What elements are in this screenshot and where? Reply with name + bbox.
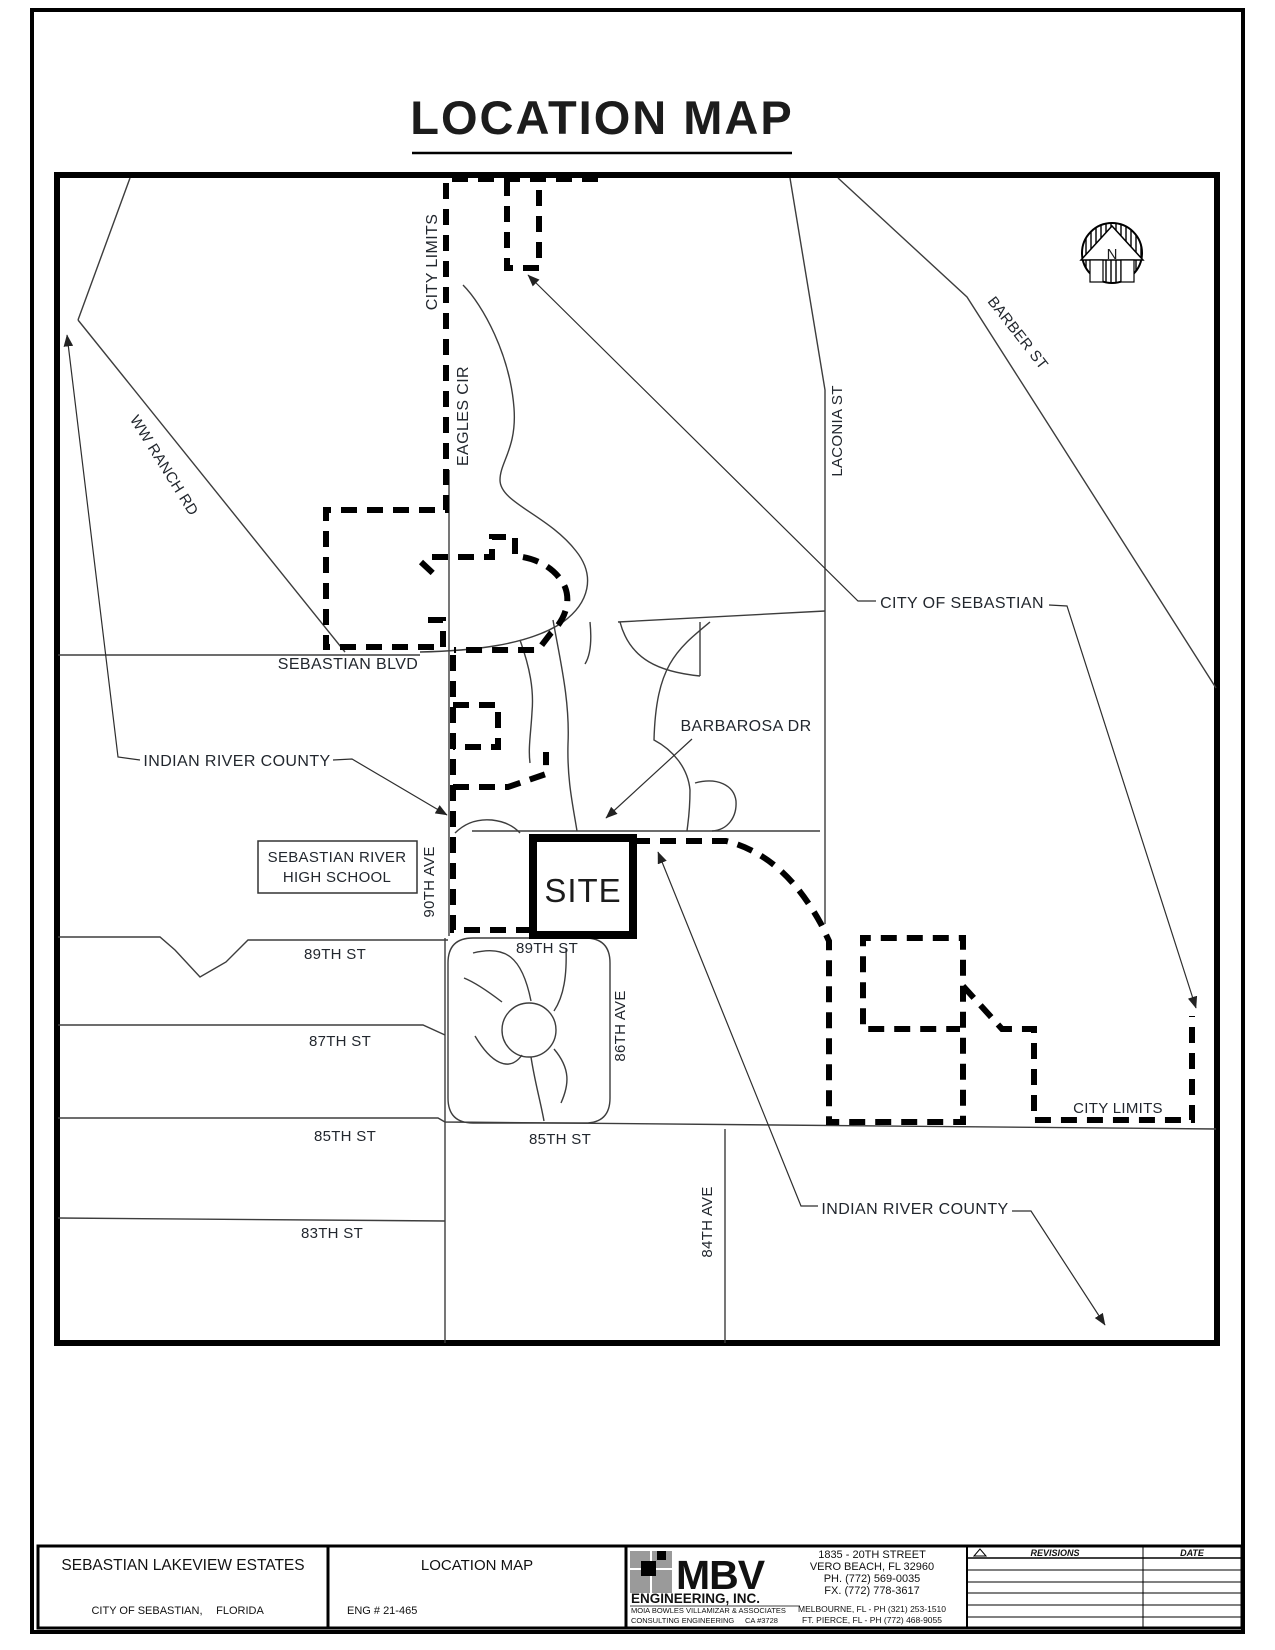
label-indian-river-county-left: INDIAN RIVER COUNTY: [143, 753, 330, 770]
road-subdivision-inner-6: [464, 978, 502, 1002]
city-limits-notch-top: [507, 180, 539, 268]
leader-irc-left-up: [67, 335, 140, 760]
label-ww-ranch-rd: WW RANCH RD: [126, 412, 201, 518]
high-school-label-line1: SEBASTIAN RIVER: [268, 849, 407, 866]
road-barbarosa-dr: [553, 620, 577, 831]
leader-irc-bottom-right: [1012, 1211, 1105, 1325]
road-subdivision-inner-4: [554, 1049, 567, 1103]
road-parcel-6: [585, 622, 591, 664]
road-89th-st-west: [58, 937, 448, 977]
location-map-sheet: LOCATION MAP: [0, 0, 1275, 1650]
firm-office1: MELBOURNE, FL - PH (321) 253-1510: [798, 1604, 946, 1614]
leader-barbarosa: [606, 739, 692, 818]
label-eagles-cir: EAGLES CIR: [455, 366, 472, 466]
leader-irc-bottom-left: [658, 852, 818, 1206]
firm-name: ENGINEERING, INC.: [631, 1591, 760, 1606]
label-87th-st: 87TH ST: [309, 1033, 371, 1050]
city-limits-group: [326, 179, 1192, 1122]
sheet-title: LOCATION MAP: [421, 1557, 533, 1574]
site-label: SITE: [544, 872, 621, 909]
city-limits-step-a: [421, 562, 437, 577]
firm-office2: FT. PIERCE, FL - PH (772) 468-9055: [802, 1615, 942, 1625]
logo-black-tab: [657, 1551, 666, 1560]
firm-subtitle2: CONSULTING ENGINEERING: [631, 1616, 734, 1625]
label-86th-ave: 86TH AVE: [612, 990, 629, 1061]
map-labels-group: CITY LIMITS EAGLES CIR WW RANCH RD BARBE…: [126, 214, 1163, 1258]
label-sebastian-blvd: SEBASTIAN BLVD: [278, 656, 418, 673]
road-subdivision-inner-3: [475, 1036, 522, 1064]
city-limits-west-drop: [453, 655, 532, 930]
firm-fax: FX. (772) 778-3617: [824, 1585, 919, 1597]
city-limits-wave: [453, 752, 546, 787]
label-90th-ave: 90TH AVE: [421, 846, 438, 917]
page-border: [32, 10, 1243, 1632]
project-state: FLORIDA: [216, 1605, 264, 1617]
label-city-limits-right: CITY LIMITS: [1073, 1100, 1163, 1117]
north-arrow-leg-left: [1090, 260, 1103, 282]
project-name: SEBASTIAN LAKEVIEW ESTATES: [61, 1557, 304, 1574]
label-city-limits-top: CITY LIMITS: [424, 214, 441, 311]
north-arrow-n: N: [1107, 246, 1118, 263]
label-89th-st-left: 89TH ST: [304, 946, 366, 963]
road-roundabout: [502, 1003, 556, 1057]
label-indian-river-county-bottom: INDIAN RIVER COUNTY: [821, 1201, 1008, 1218]
road-83th-st: [58, 1218, 445, 1221]
city-limits-blob: [432, 537, 567, 650]
address-line1: 1835 - 20TH STREET: [818, 1549, 926, 1561]
revisions-header: REVISIONS: [1030, 1548, 1079, 1558]
project-city: CITY OF SEBASTIAN,: [91, 1605, 202, 1617]
label-barber-st: BARBER ST: [984, 293, 1051, 373]
label-84th-ave: 84TH AVE: [699, 1186, 716, 1257]
road-87th-st: [58, 1025, 445, 1035]
label-city-of-sebastian: CITY OF SEBASTIAN: [880, 595, 1044, 612]
label-barbarosa-dr: BARBAROSA DR: [680, 718, 811, 735]
label-laconia-st: LACONIA ST: [829, 385, 846, 476]
leader-irc-left-right: [333, 759, 447, 815]
firm-license: CA #3728: [745, 1616, 778, 1625]
label-89th-st-right: 89TH ST: [516, 940, 578, 957]
logo-black-square: [641, 1561, 656, 1576]
north-arrow: N: [1081, 223, 1143, 283]
page-title: LOCATION MAP: [410, 91, 793, 144]
road-northwest: [78, 178, 130, 320]
road-subdivision-inner-5: [531, 1057, 544, 1121]
city-limits-stair: [453, 705, 498, 747]
firm-subtitle: MOIA BOWLES VILLAMIZAR & ASSOCIATES: [631, 1606, 786, 1615]
road-parcel-1: [520, 640, 533, 763]
firm-phone: PH. (772) 569-0035: [824, 1573, 921, 1585]
road-parcel-3: [695, 781, 736, 831]
title-block: SEBASTIAN LAKEVIEW ESTATES CITY OF SEBAS…: [38, 1546, 1242, 1628]
road-ww-ranch-rd: [78, 320, 345, 652]
label-83th-st: 83TH ST: [301, 1225, 363, 1242]
label-85th-st-right: 85TH ST: [529, 1131, 591, 1148]
address-line2: VERO BEACH, FL 32960: [810, 1561, 934, 1573]
leaders-group: [67, 275, 1196, 1325]
road-subdivision-block: [448, 938, 610, 1123]
road-sebastian-blvd-east: [618, 611, 825, 622]
city-limits-east-curve: [634, 841, 963, 1122]
date-header: DATE: [1180, 1548, 1205, 1558]
north-arrow-leg-right: [1121, 260, 1134, 282]
label-85th-st-left: 85TH ST: [314, 1128, 376, 1145]
city-limits-step-b: [426, 620, 443, 647]
leader-city-of-sebastian-east: [1049, 605, 1196, 1008]
high-school-label-line2: HIGH SCHOOL: [283, 869, 391, 886]
leader-city-of-sebastian-west: [528, 275, 876, 601]
road-subdivision-inner-2: [554, 948, 566, 1011]
road-parcel-5: [620, 622, 700, 676]
road-subdivision-inner-1: [473, 951, 531, 1001]
eng-number: ENG # 21-465: [347, 1605, 417, 1617]
